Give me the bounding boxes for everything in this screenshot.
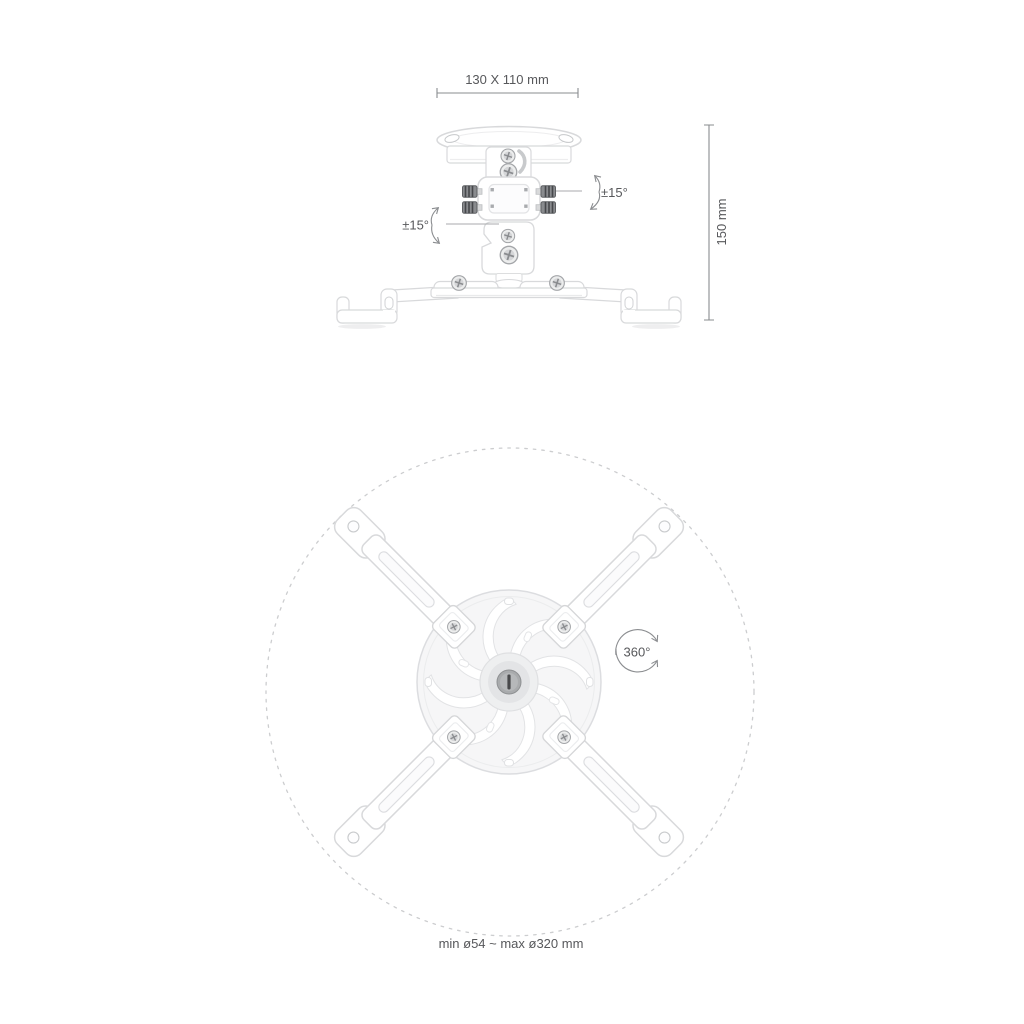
center-hub [480,653,538,711]
width-dimension: 130 X 110 mm [437,72,578,98]
rotation-annotation: 360° [616,630,657,672]
bottom-view-figure: 360° min ø54 ~ max ø320 mm [266,448,754,951]
ceiling-mount-bottom [330,503,687,860]
diameter-range-label: min ø54 ~ max ø320 mm [439,936,584,951]
center-screw-slot [507,675,510,690]
front-view-figure: 130 X 110 mm 150 mm [337,72,729,329]
tilt-right-label: ±15° [601,185,628,200]
tilt-arc-icon-left [431,208,439,243]
tilt-gimbal [463,177,556,220]
tilt-left-label: ±15° [402,218,429,233]
height-dimension: 150 mm [704,125,729,320]
width-dimension-label: 130 X 110 mm [465,72,549,87]
product-diagram-page: 130 X 110 mm 150 mm [0,0,1024,1024]
tilt-annotation-right: ±15° [556,176,628,209]
tilt-arc-icon-right [591,176,600,209]
lower-bracket [482,222,534,289]
projector-mount-diagram: 130 X 110 mm 150 mm [0,0,1024,1024]
rotation-angle-label: 360° [624,645,651,660]
height-dimension-label: 150 mm [714,199,729,246]
